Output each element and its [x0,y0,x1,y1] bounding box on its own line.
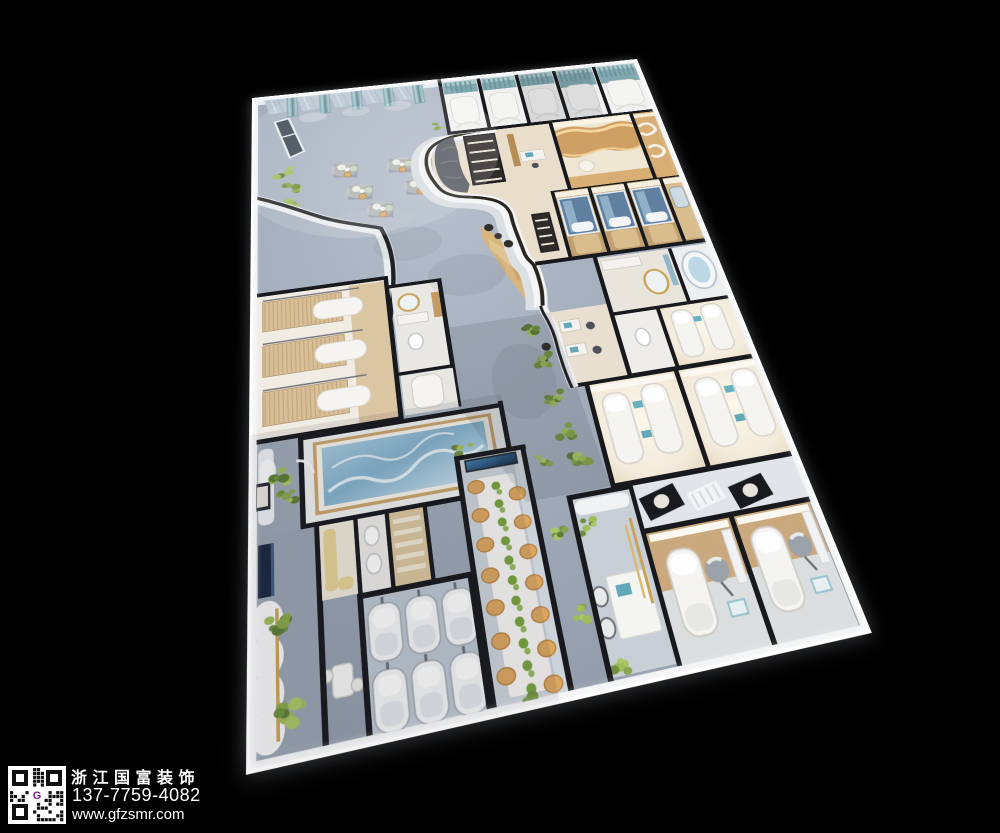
svg-text:G: G [33,790,42,802]
